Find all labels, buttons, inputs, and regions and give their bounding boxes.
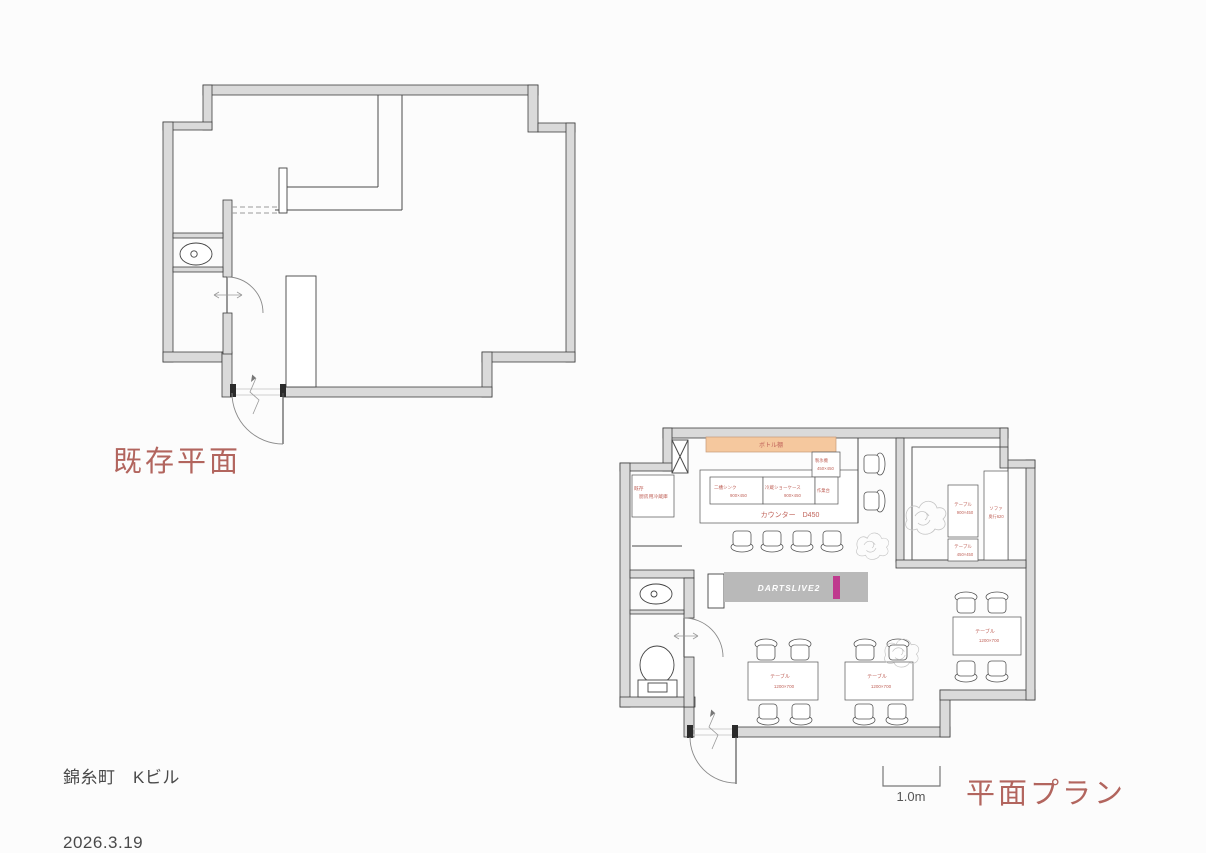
table-c-size: 1200×700 <box>979 638 1000 643</box>
existing-fridge-box: 既存 厨房用冷蔵庫 <box>632 475 674 517</box>
swing-arrow-icon <box>674 633 698 639</box>
chair-icon <box>955 592 977 613</box>
table-rect <box>948 539 978 561</box>
entry-arrow-icon <box>250 375 259 415</box>
chair-icon <box>757 704 779 725</box>
ice-maker-box <box>812 452 840 477</box>
existing-plan-drawing <box>160 80 580 450</box>
sink-unit-size: 900×450 <box>730 493 747 498</box>
doodle-sketch <box>857 533 889 559</box>
title-date: 2026.3.19 <box>63 832 315 853</box>
scale-bar-label: 1.0m <box>897 789 926 804</box>
table-b-label: テーブル <box>867 673 887 680</box>
sink-unit-box <box>710 477 763 504</box>
chair-icon <box>864 490 885 512</box>
existing-plan-title: 既存平面 <box>113 438 241 480</box>
showcase-label: 冷蔵ショーケース <box>765 484 801 491</box>
existing-interior-partitions <box>173 200 232 354</box>
proposed-plan-drawing: 既存 厨房用冷蔵庫 ボトル棚 製氷機 450×450 二槽シンク 900×450… <box>610 420 1050 805</box>
existing-columns <box>279 168 316 387</box>
bottle-shelf-label: ボトル棚 <box>759 441 783 449</box>
chair-icon <box>864 453 885 475</box>
sink-icon <box>640 584 672 604</box>
table-rect <box>953 617 1021 655</box>
title-block: 錦糸町 Kビル 2026.3.19 プランニング用 ラフ平面図NO1 1/50 <box>63 724 315 853</box>
table-900-size: 900×450 <box>957 510 974 515</box>
swing-arrow-icon <box>214 292 242 298</box>
floor-plan-sheet: 既存 厨房用冷蔵庫 ボトル棚 製氷機 450×450 二槽シンク 900×450… <box>0 0 1206 853</box>
ice-maker-label: 製氷機 <box>815 457 829 464</box>
darts-machine-label: DARTSLIVE2 <box>758 583 821 593</box>
x-brace-column <box>672 440 688 473</box>
title-location: 錦糸町 Kビル <box>63 767 315 789</box>
chair-icon <box>789 639 811 660</box>
table-rect <box>845 662 913 700</box>
chair-icon <box>854 639 876 660</box>
bottle-shelf: ボトル棚 <box>706 437 836 452</box>
entry-door <box>687 710 738 785</box>
table-900-label: テーブル <box>954 501 972 508</box>
table-c-label: テーブル <box>975 628 995 635</box>
table-a-label: テーブル <box>770 673 790 680</box>
sink-icon <box>180 243 212 265</box>
toilet-icon <box>638 646 677 697</box>
chair-icon <box>886 704 908 725</box>
column <box>279 168 287 213</box>
chair-icon <box>853 704 875 725</box>
washroom-door <box>674 618 723 657</box>
chair-icon <box>731 531 753 552</box>
sofa-size: 奥行620 <box>988 513 1004 520</box>
chair-icon <box>986 661 1008 682</box>
chair-icon <box>761 531 783 552</box>
sofa-room: ソファ 奥行620 テーブル 900×450 テーブル 450×450 <box>906 447 1008 561</box>
entry-door <box>230 375 286 445</box>
work-table-label: 作業台 <box>817 487 830 494</box>
chair-icon <box>790 704 812 725</box>
table-a-size: 1200×700 <box>774 684 795 689</box>
chair-icon <box>821 531 843 552</box>
column <box>286 276 316 387</box>
existing-interior-lines <box>232 95 402 213</box>
dining-area: テーブル 1200×700 テーブル 1200×700 テーブル 1200×70… <box>748 592 1021 725</box>
darts-magenta-panel <box>833 576 840 599</box>
table-450-size: 450×450 <box>957 552 974 557</box>
showcase-box <box>763 477 815 504</box>
sink-unit-label: 二槽シンク <box>714 484 737 491</box>
chair-icon <box>755 639 777 660</box>
counter-label: カウンター D450 <box>761 510 820 519</box>
darts-machine: DARTSLIVE2 <box>708 572 868 608</box>
washroom <box>632 546 723 697</box>
proposed-plan-title: 平面プラン <box>966 770 1126 812</box>
ice-maker-size: 450×450 <box>817 466 834 471</box>
table-rect <box>748 662 818 700</box>
table-b-size: 1200×700 <box>871 684 892 689</box>
washroom-door <box>214 277 263 313</box>
showcase-size: 900×450 <box>784 493 801 498</box>
chair-icon <box>887 639 909 660</box>
scale-bar: 1.0m <box>883 766 940 804</box>
fridge-label-1: 既存 <box>634 485 644 492</box>
fridge-label-2: 厨房用冷蔵庫 <box>639 493 668 500</box>
chair-icon <box>955 661 977 682</box>
chair-icon <box>791 531 813 552</box>
table-450-label: テーブル <box>954 543 972 550</box>
chair-icon <box>986 592 1008 613</box>
